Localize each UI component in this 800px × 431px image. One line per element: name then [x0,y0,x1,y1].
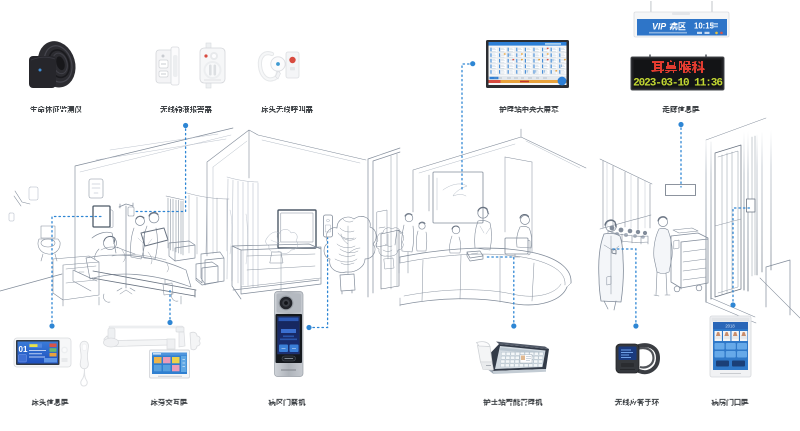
svg-text:01: 01 [19,345,28,354]
svg-text:VIP: VIP [652,21,666,31]
svg-text:2023-03-10 11:36: 2023-03-10 11:36 [633,78,722,90]
svg-text:2018: 2018 [725,324,735,329]
